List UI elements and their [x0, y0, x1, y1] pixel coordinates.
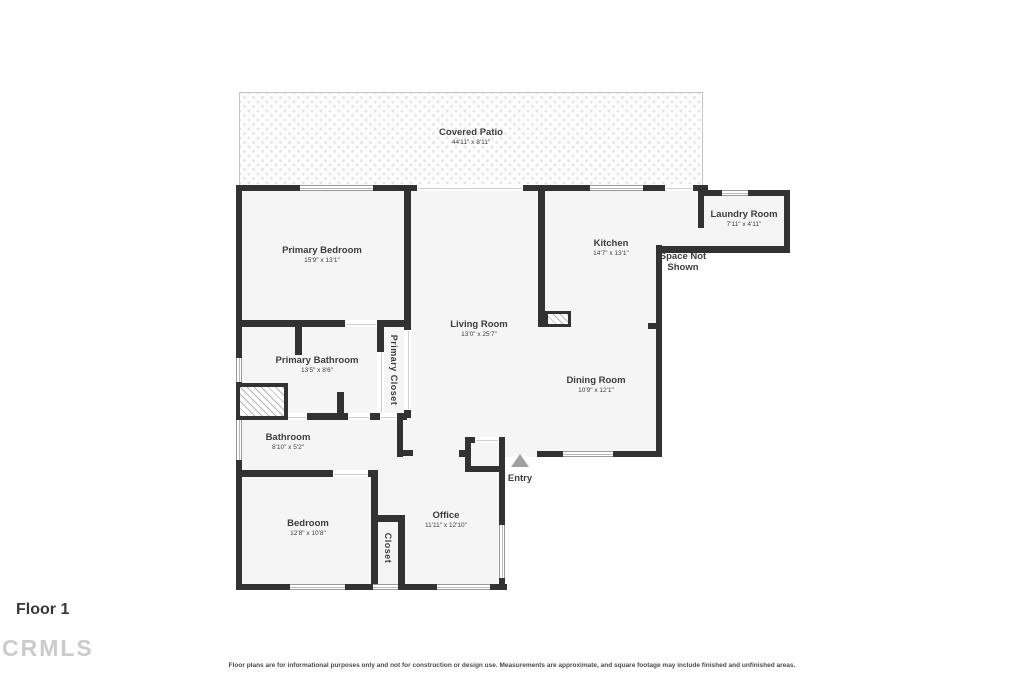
door-opening	[417, 185, 523, 191]
window	[236, 358, 242, 382]
wall-segment	[784, 190, 790, 253]
door-opening	[377, 352, 384, 413]
room-label-dining-room: Dining Room 10'9" x 12'1"	[566, 375, 625, 395]
door-opening	[348, 413, 370, 420]
room-dims: 12'8" x 10'8"	[287, 529, 329, 538]
room-name: Kitchen	[593, 238, 629, 249]
room-dims: 15'9" x 13'1"	[282, 256, 362, 265]
room-label-bathroom: Bathroom 8'10" x 5'2"	[266, 432, 311, 452]
window	[236, 420, 242, 460]
room-dims: 7'11" x 4'11"	[710, 220, 777, 229]
door-opening	[380, 413, 397, 420]
floor-plan-page: { "floor_label": "Floor 1", "watermark":…	[0, 0, 1024, 683]
door-opening	[475, 437, 499, 443]
wall-segment	[648, 323, 656, 329]
room-name: Bedroom	[287, 518, 329, 529]
wall-segment	[523, 185, 590, 191]
kitchen-counter	[545, 311, 571, 327]
door-opening	[404, 330, 411, 410]
wall-segment	[499, 437, 505, 443]
room-name: Covered Patio	[439, 127, 503, 138]
room-name: Laundry Room	[710, 209, 777, 220]
room-label-bedroom: Bedroom 12'8" x 10'8"	[287, 518, 329, 538]
window	[437, 584, 490, 590]
window	[373, 584, 400, 590]
room-dims: 14'7" x 13'1"	[593, 249, 629, 258]
room-dims: 13'5" x 8'6"	[276, 366, 359, 375]
wall-segment	[698, 190, 704, 228]
wall-segment	[656, 245, 662, 457]
wall-segment	[403, 450, 413, 456]
disclaimer-text: Floor plans are for informational purpos…	[0, 662, 1024, 669]
entry-arrow-icon	[511, 454, 529, 467]
room-name: Primary Bathroom	[276, 355, 359, 366]
room-label-office: Office 11'11" x 12'10"	[425, 510, 467, 530]
wall-segment	[538, 190, 545, 327]
wall-segment	[459, 450, 466, 457]
room-label-covered-patio: Covered Patio 44'11" x 8'11"	[439, 127, 503, 147]
wall-segment	[499, 578, 505, 590]
room-label-closet: Closet	[383, 533, 393, 564]
wall-segment	[236, 584, 290, 590]
room-name: Bathroom	[266, 432, 311, 443]
window	[290, 584, 345, 590]
room-name: Living Room	[450, 319, 508, 330]
floor-area	[662, 190, 698, 246]
floor-title: Floor 1	[16, 601, 69, 619]
wall-segment	[465, 466, 505, 472]
wall-segment	[236, 185, 300, 191]
wall-segment	[236, 320, 345, 327]
room-name: Primary Bedroom	[282, 245, 362, 256]
room-name: Dining Room	[566, 375, 625, 386]
room-label-entry: Entry	[508, 473, 532, 484]
wall-segment	[537, 451, 563, 457]
room-name: Entry	[508, 473, 532, 484]
room-label-living-room: Living Room 13'0" x 25'7"	[450, 319, 508, 339]
door-opening	[665, 185, 693, 191]
wall-segment	[499, 437, 505, 525]
wall-segment	[613, 451, 662, 457]
room-dims: 13'0" x 25'7"	[450, 330, 508, 339]
wall-segment	[371, 470, 378, 584]
wall-segment	[345, 584, 373, 590]
shower	[236, 383, 288, 420]
door-opening	[333, 470, 368, 477]
window	[590, 185, 643, 191]
room-label-primary-bedroom: Primary Bedroom 15'9" x 13'1"	[282, 245, 362, 265]
window	[499, 525, 505, 578]
room-label-primary-bathroom: Primary Bathroom 13'5" x 8'6"	[276, 355, 359, 375]
wall-segment	[398, 515, 405, 590]
room-dims: 11'11" x 12'10"	[425, 521, 467, 530]
label-space-not-shown: Space Not Shown	[651, 251, 715, 274]
room-dims: 44'11" x 8'11"	[439, 138, 503, 147]
wall-segment	[337, 392, 344, 420]
wall-segment	[377, 320, 384, 352]
room-dims: 8'10" x 5'2"	[266, 443, 311, 452]
window	[722, 190, 748, 196]
room-label-kitchen: Kitchen 14'7" x 13'1"	[593, 238, 629, 258]
wall-segment	[643, 185, 665, 191]
floor-plan: Covered Patio 44'11" x 8'11" Laundry Roo…	[0, 0, 1024, 683]
room-dims: 10'9" x 12'1"	[566, 386, 625, 395]
wall-segment	[236, 470, 333, 477]
room-label-primary-closet: Primary Closet	[389, 335, 399, 406]
room-label-laundry: Laundry Room 7'11" x 4'11"	[710, 209, 777, 229]
wall-segment	[236, 460, 242, 590]
room-name: Space Not Shown	[651, 251, 715, 274]
wall-segment	[370, 413, 380, 420]
window	[300, 185, 373, 191]
room-name: Office	[425, 510, 467, 521]
wall-segment	[236, 185, 242, 358]
door-opening	[345, 320, 377, 327]
wall-segment	[295, 327, 302, 355]
crmls-watermark: CRMLS	[2, 635, 94, 662]
window	[563, 451, 613, 457]
wall-segment	[404, 185, 411, 330]
wall-segment	[400, 584, 437, 590]
